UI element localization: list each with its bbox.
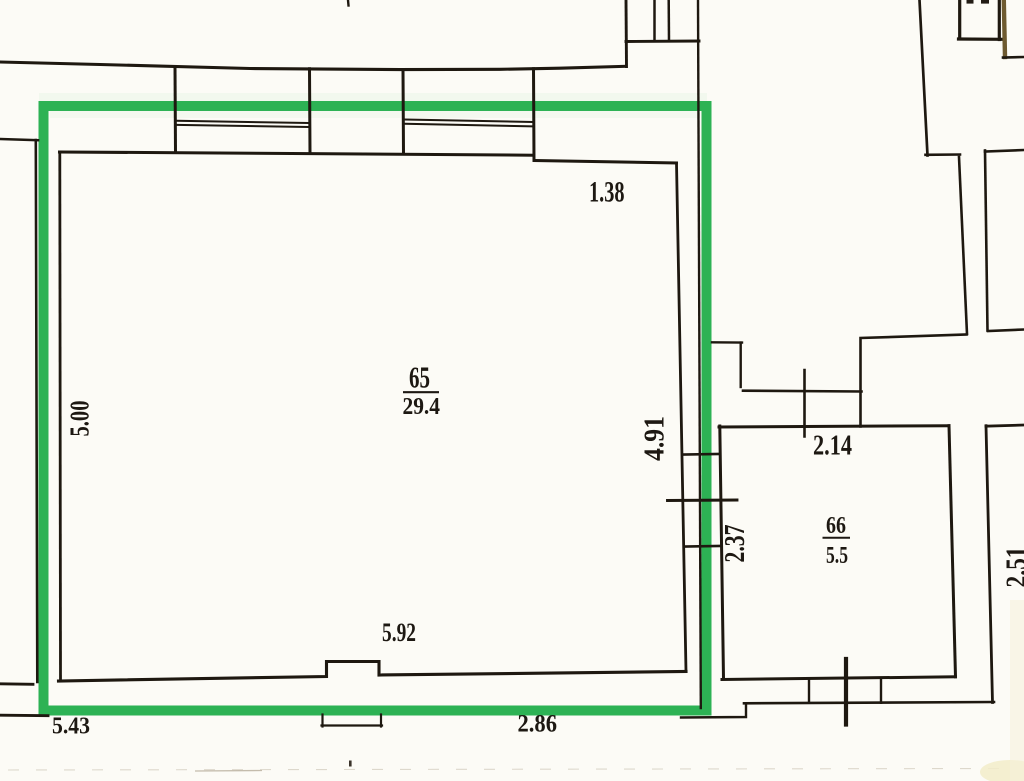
svg-text:65: 65	[409, 360, 430, 395]
svg-text:29.4: 29.4	[403, 394, 441, 420]
svg-text:4.91: 4.91	[639, 416, 671, 461]
svg-text:1.38: 1.38	[589, 176, 625, 209]
svg-text:66: 66	[826, 512, 846, 539]
svg-text:2.86: 2.86	[518, 711, 558, 738]
svg-text:5.92: 5.92	[382, 618, 416, 647]
svg-text:2.14: 2.14	[813, 431, 852, 462]
svg-text:5.00: 5.00	[65, 401, 95, 437]
svg-text:5.5: 5.5	[826, 542, 848, 569]
svg-text:5.43: 5.43	[52, 714, 90, 740]
svg-text:2.51: 2.51	[1002, 547, 1024, 588]
svg-text:2.37: 2.37	[720, 525, 751, 563]
